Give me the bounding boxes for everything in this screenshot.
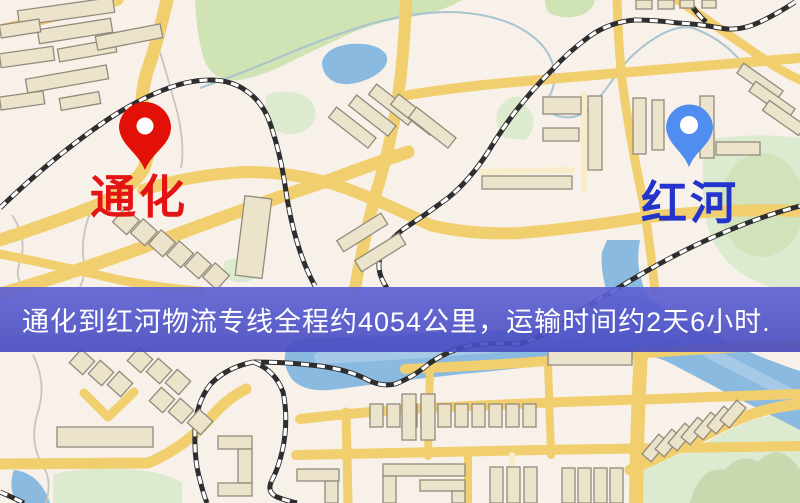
origin-pin-hole bbox=[137, 118, 154, 135]
origin-label: 通化 bbox=[90, 174, 188, 220]
map-canvas[interactable] bbox=[0, 0, 800, 503]
info-banner-text: 通化到红河物流专线全程约4054公里，运输时间约2天6小时. bbox=[22, 300, 771, 339]
info-banner: 通化到红河物流专线全程约4054公里，运输时间约2天6小时. bbox=[0, 287, 800, 352]
destination-label: 红河 bbox=[641, 180, 739, 226]
map-screenshot: 通化 红河 通化到红河物流专线全程约4054公里，运输时间约2天6小时. bbox=[0, 0, 800, 503]
destination-pin-hole bbox=[680, 116, 698, 134]
